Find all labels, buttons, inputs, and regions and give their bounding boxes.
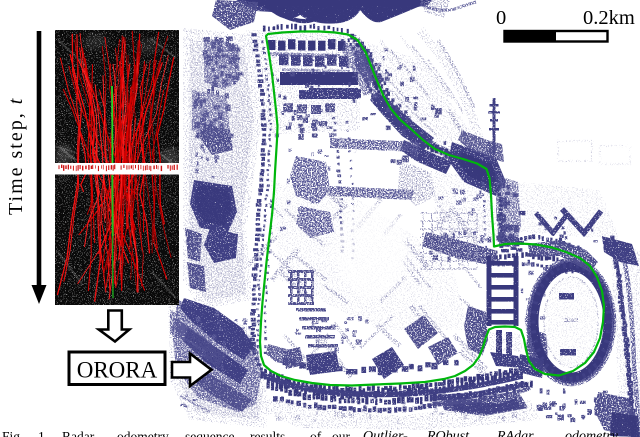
svg-text:ORORA: ORORA [77, 358, 158, 383]
svg-text:0: 0 [496, 7, 506, 29]
svg-text:0.2km: 0.2km [583, 7, 635, 29]
svg-text:Time step, t: Time step, t [5, 97, 27, 215]
